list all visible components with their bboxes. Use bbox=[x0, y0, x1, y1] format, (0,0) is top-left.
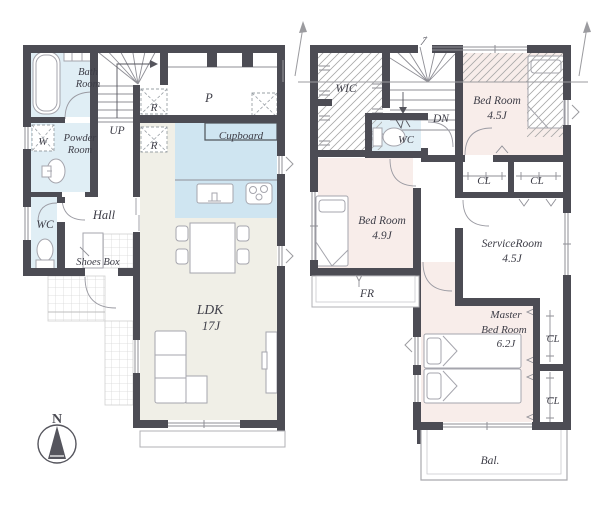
hall-ldk-slider bbox=[136, 198, 139, 231]
service-door-arc bbox=[463, 200, 489, 226]
terrace bbox=[140, 431, 285, 447]
vent-icon bbox=[405, 338, 412, 352]
eave-arrow-left bbox=[299, 21, 307, 33]
storage-r2-label: R bbox=[150, 140, 158, 152]
porch-tile bbox=[48, 276, 105, 321]
cupboard-label: Cupboard bbox=[219, 130, 264, 142]
vent-icon bbox=[286, 249, 293, 263]
master-bed-2 bbox=[424, 369, 521, 403]
powder-room-label2: Room bbox=[67, 145, 93, 156]
wic-label: WIC bbox=[335, 83, 356, 95]
wc-door-arc-2f bbox=[428, 122, 453, 147]
master-west-window2 bbox=[415, 375, 418, 402]
eave-arrow-right bbox=[583, 21, 591, 33]
master-south-window bbox=[443, 422, 532, 430]
powder-door-arc bbox=[62, 197, 85, 220]
master-size-label: 6.2J bbox=[497, 338, 517, 350]
closet2-label: CL bbox=[530, 175, 543, 187]
pantry-label: P bbox=[204, 91, 213, 105]
vent-icon bbox=[572, 105, 579, 119]
pantry-details bbox=[168, 67, 277, 117]
dining-chair bbox=[237, 249, 249, 264]
washer-label: W bbox=[38, 136, 48, 148]
vent-icon bbox=[286, 157, 293, 171]
closet3-label: CL bbox=[547, 334, 560, 345]
ldk-window-right2 bbox=[279, 246, 282, 266]
dn-label: DN bbox=[432, 113, 450, 125]
powder-window bbox=[25, 127, 28, 149]
service-room-label: ServiceRoom bbox=[482, 238, 543, 250]
stove bbox=[246, 183, 272, 204]
up-arrow-head bbox=[150, 60, 158, 68]
balcony-label: Bal. bbox=[481, 455, 500, 467]
bedroom1-side-window bbox=[565, 100, 568, 125]
shoes-box-label: Shoes Box bbox=[76, 257, 120, 268]
master-west-window1 bbox=[415, 337, 418, 365]
dining-chair bbox=[176, 249, 188, 264]
second-floor-plan: WIC DN WC Bed Room 4.5J CL CL Bed Room 4… bbox=[295, 21, 591, 480]
hall-label: Hall bbox=[92, 208, 116, 222]
dining-table bbox=[190, 223, 235, 273]
master-label1: Master bbox=[489, 309, 522, 321]
kitchen-sink bbox=[197, 184, 233, 203]
floor-plan-page: Bath Room UP W Powder Room WC Hall Shoes… bbox=[0, 0, 600, 516]
bedroom2-label: Bed Room bbox=[358, 215, 406, 227]
bedroom1-label: Bed Room bbox=[473, 95, 521, 107]
wc-label-1f: WC bbox=[36, 219, 54, 231]
bedroom1-size-label: 4.5J bbox=[487, 110, 507, 122]
wc-label-2f: WC bbox=[398, 135, 415, 146]
bed-4-9j bbox=[316, 196, 348, 266]
compass: N bbox=[38, 412, 76, 463]
storage-r1-label: R bbox=[150, 102, 158, 114]
bath-room-label: Bath bbox=[78, 67, 98, 78]
down-arrow-head bbox=[399, 107, 407, 114]
cl-fold-marks-down bbox=[519, 199, 556, 206]
compass-needle bbox=[48, 426, 66, 459]
vent-marks-1f bbox=[286, 157, 293, 263]
service-room-size-label: 4.5J bbox=[502, 253, 522, 265]
bedroom1-top-window bbox=[462, 45, 527, 53]
first-floor-plan: Bath Room UP W Powder Room WC Hall Shoes… bbox=[23, 45, 293, 447]
up-label: UP bbox=[109, 125, 124, 137]
fr-label: FR bbox=[359, 288, 374, 300]
bedroom2-size-label: 4.9J bbox=[372, 230, 392, 242]
approach-tile bbox=[105, 321, 133, 405]
floor-plan-canvas: Bath Room UP W Powder Room WC Hall Shoes… bbox=[0, 0, 600, 516]
storage-box-p bbox=[252, 93, 277, 117]
dining-chair bbox=[237, 226, 249, 241]
bathtub bbox=[33, 52, 60, 114]
ldk-size-label: 17J bbox=[202, 319, 222, 333]
north-label: N bbox=[52, 412, 62, 427]
closet1-label: CL bbox=[477, 175, 490, 187]
ldk-label: LDK bbox=[196, 302, 224, 317]
powder-room-label: Powder bbox=[63, 133, 98, 144]
service-window bbox=[563, 213, 571, 275]
ldk-window-west bbox=[135, 340, 138, 373]
master-entry-area bbox=[421, 262, 455, 306]
ldk-window-south bbox=[168, 420, 240, 428]
dining-chair bbox=[176, 226, 188, 241]
toilet-1f bbox=[36, 239, 54, 270]
ldk-window-right1 bbox=[279, 156, 282, 174]
bath-room-label2: Room bbox=[75, 79, 101, 90]
wc-window bbox=[25, 207, 28, 240]
master-label2: Bed Room bbox=[481, 324, 527, 336]
closet4-label: CL bbox=[547, 396, 560, 407]
